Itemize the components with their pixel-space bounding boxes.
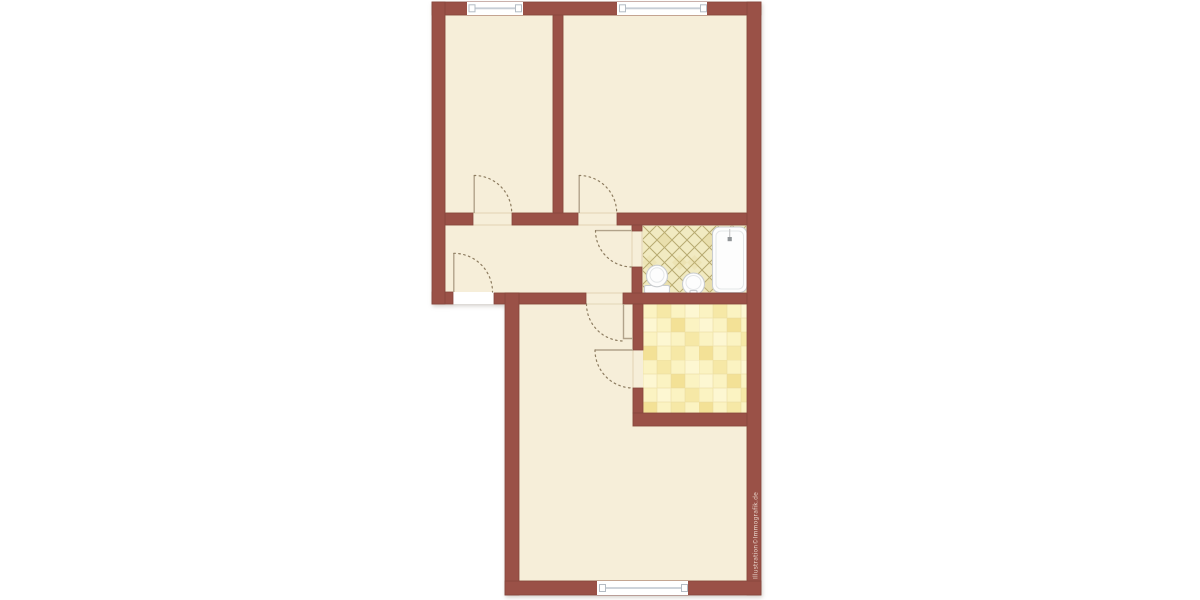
wall-bath-left-stub (632, 225, 642, 231)
toilet (645, 265, 670, 293)
window-cap (620, 5, 626, 12)
room-top-left-floor (445, 15, 553, 213)
bathtub-faucet-icon (728, 237, 732, 241)
canvas: Illustration©Immografik.de (0, 0, 1200, 600)
wall-a-right (617, 213, 747, 225)
window-top-left (467, 2, 523, 15)
building: Illustration©Immografik.de (432, 2, 761, 595)
window-cap (682, 585, 688, 592)
bathtub (713, 227, 748, 293)
wall-exterior-left-lower (505, 293, 519, 595)
window-cap (701, 5, 707, 12)
wall-kitchen-left-bottom (633, 388, 643, 413)
wall-bath-left (632, 267, 642, 294)
floorplan-svg: Illustration©Immografik.de (0, 0, 1200, 600)
kitchen-tiles (643, 304, 747, 413)
sink (683, 273, 705, 295)
window-top-right (617, 2, 707, 15)
entrance-threshold (453, 292, 494, 304)
window-cap (469, 5, 475, 12)
wall-kitchen-left-top (633, 304, 643, 350)
window-bottom (597, 581, 688, 595)
wall-b-right (623, 293, 747, 304)
wall-a-mid (512, 213, 578, 225)
wall-exterior-left-upper (432, 2, 445, 304)
wall-kitchen-bottom (633, 413, 747, 426)
wall-room-divider (553, 14, 563, 214)
window-cap (516, 5, 522, 12)
kitchen-floor (643, 304, 747, 413)
window-cap (600, 585, 606, 592)
watermark-text: Illustration©Immografik.de (753, 492, 760, 579)
room-top-right-floor (563, 15, 747, 213)
wall-a-left (445, 213, 473, 225)
